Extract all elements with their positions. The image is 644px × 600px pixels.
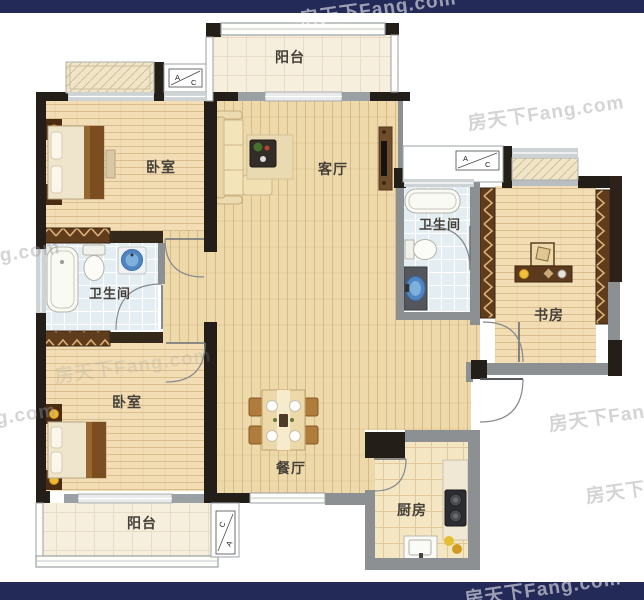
wall xyxy=(36,313,46,347)
wall xyxy=(325,493,369,505)
wall xyxy=(370,92,410,101)
ac-unit-bottom: C A xyxy=(216,511,235,554)
window-panel xyxy=(238,92,265,101)
kitchen-sink-icon xyxy=(404,536,437,560)
balcony-top-right-wall xyxy=(391,35,398,92)
window-panel xyxy=(342,92,370,101)
wall xyxy=(396,312,478,320)
wall xyxy=(477,363,608,375)
wall xyxy=(512,180,578,186)
wall xyxy=(608,340,622,376)
wall xyxy=(385,23,399,35)
corridor-opening-floor xyxy=(204,252,217,322)
ac-unit-top: A C xyxy=(169,69,202,87)
watermark: 房天下Fang.com xyxy=(466,90,625,135)
bay-window-study xyxy=(512,158,578,180)
label-dining: 餐厅 xyxy=(275,460,306,476)
label-balcony-bottom: 阳台 xyxy=(127,515,157,531)
stove-icon xyxy=(445,490,466,526)
wall xyxy=(365,432,405,458)
wall xyxy=(396,182,404,312)
wall xyxy=(158,243,165,284)
watermark: 房天下Fang.com xyxy=(547,391,644,436)
ac-unit-right: A C xyxy=(456,151,499,170)
living-floor xyxy=(217,101,398,187)
label-kitchen: 厨房 xyxy=(397,502,427,518)
tv-cabinet-icon xyxy=(379,127,392,190)
wall xyxy=(468,430,480,570)
balcony-top-left-wall xyxy=(206,37,213,101)
label-bathroom-right: 卫生间 xyxy=(419,217,461,232)
wall xyxy=(36,491,50,503)
window-panel xyxy=(64,494,78,503)
floorplan-canvas: A C A C C A xyxy=(0,0,644,600)
wall xyxy=(36,92,68,101)
bathtub-right-icon xyxy=(405,189,460,213)
wall xyxy=(204,493,250,503)
balcony-bottom-left-wall xyxy=(36,503,43,556)
label-study: 书房 xyxy=(534,307,564,323)
floorplan-page: A C A C C A xyxy=(0,0,644,600)
wall xyxy=(471,360,487,379)
sink-right-icon xyxy=(404,267,427,310)
corridor-floor xyxy=(163,231,204,343)
kitchen-doorway-floor xyxy=(365,458,375,490)
label-living: 客厅 xyxy=(317,161,348,177)
ac-label-a: A xyxy=(175,73,180,82)
toilet-left-icon xyxy=(83,245,105,281)
wall xyxy=(206,23,221,37)
coffee-table-icon xyxy=(247,135,293,179)
wall xyxy=(204,92,217,252)
window-panel xyxy=(172,494,204,503)
wall xyxy=(36,92,46,233)
toilet-right-icon xyxy=(405,240,437,260)
door-entry xyxy=(480,379,523,422)
label-bedroom-top: 卧室 xyxy=(146,159,176,175)
bookshelf-study-left xyxy=(480,188,495,318)
ac-label-c: C xyxy=(191,78,197,87)
wall xyxy=(365,558,480,570)
ac-label-a: A xyxy=(463,154,468,163)
wall xyxy=(610,176,622,282)
bookshelf-study-right xyxy=(596,190,610,324)
wall xyxy=(110,231,163,243)
ac-label-c: C xyxy=(485,160,491,169)
wall xyxy=(36,347,46,503)
living-floor-mid xyxy=(217,187,396,312)
watermark: 房天下Fang.com xyxy=(584,463,644,508)
bay-window-bedroom-top xyxy=(66,62,154,93)
label-balcony-top: 阳台 xyxy=(275,49,305,65)
wall xyxy=(110,332,163,343)
wardrobe-bedroom-bottom xyxy=(45,331,110,346)
label-bathroom-left: 卫生间 xyxy=(89,286,131,301)
label-bedroom-bottom: 卧室 xyxy=(112,394,142,410)
wall xyxy=(470,180,480,325)
sink-left-icon xyxy=(118,247,146,274)
wall xyxy=(398,101,403,168)
